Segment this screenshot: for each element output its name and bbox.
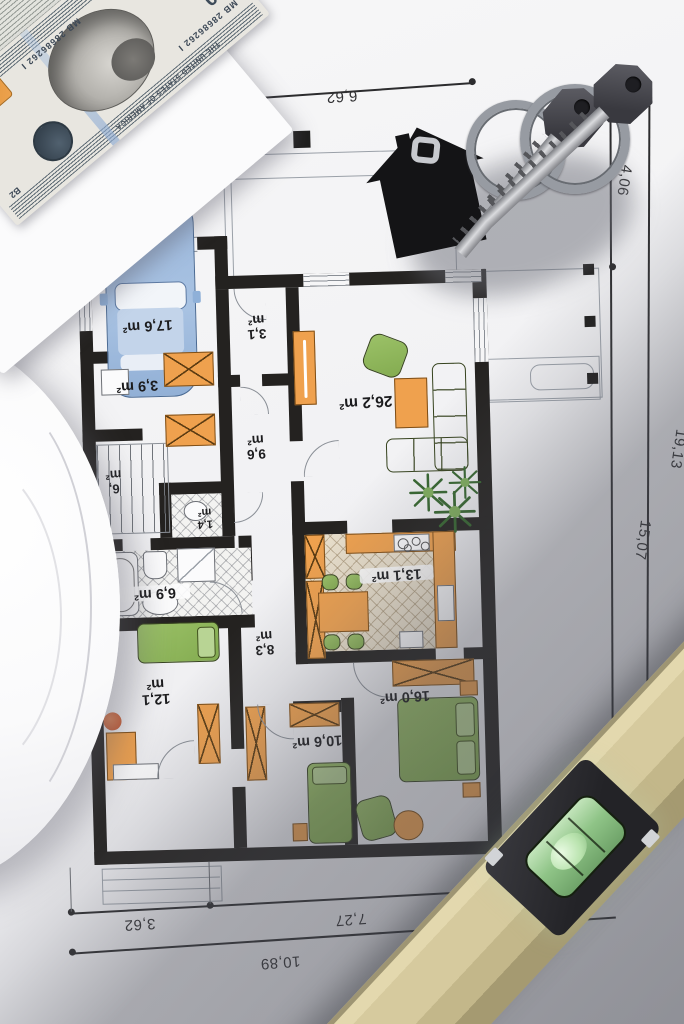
sink-symbol [437, 585, 455, 621]
window [303, 273, 349, 287]
dimension-dot [231, 95, 238, 102]
window [78, 287, 92, 331]
wall-segment [218, 375, 240, 388]
door-arc [303, 440, 340, 477]
pillow [197, 627, 216, 658]
car-mirror [100, 293, 108, 305]
sideboard-line [303, 340, 308, 398]
vial-clip [641, 829, 661, 849]
room-label-hallway: 9,6 m² [240, 431, 272, 461]
nightstand [462, 782, 480, 797]
dining-table [318, 591, 369, 632]
wardrobe [289, 702, 340, 727]
bed-symbol [137, 621, 220, 663]
porch-post [293, 131, 310, 148]
wall-segment [94, 841, 502, 865]
dimension-label-right-2: 15,07 [631, 519, 654, 561]
ball-symbol [103, 712, 121, 730]
door-arc [156, 740, 195, 779]
burner [421, 542, 430, 551]
chair [323, 634, 340, 650]
nightstand [292, 823, 307, 841]
room-label-bedroom-3: 16,0 m² [369, 686, 442, 706]
dishwasher-symbol [399, 631, 423, 649]
chair [347, 633, 364, 649]
stove-symbol [393, 534, 429, 552]
terrace-post [587, 373, 598, 384]
car-mirror [193, 291, 201, 303]
room-label-bedroom-2: 10,6 m² [282, 731, 353, 751]
wall-segment [228, 627, 244, 749]
dimension-dot [69, 949, 76, 956]
sideboard [293, 331, 317, 406]
burner [404, 544, 412, 552]
room-label-hidden: 6, m² [98, 467, 130, 496]
double-bed-symbol [397, 696, 480, 782]
wardrobe [197, 703, 221, 764]
dimension-label-bottom-3: 10,89 [260, 952, 301, 972]
section-sketch [102, 865, 223, 904]
toilet-symbol [143, 551, 168, 580]
wall-segment [232, 787, 247, 848]
room-label-wc: 1,4 m² [191, 505, 218, 530]
level-vial [520, 790, 632, 904]
door-arc [233, 492, 264, 523]
burner [412, 537, 421, 546]
pillow [455, 702, 475, 737]
bed-symbol [307, 762, 353, 844]
round-table [393, 810, 424, 841]
keys-group [348, 70, 684, 350]
key-hole [622, 73, 645, 96]
shelf-symbol [113, 763, 159, 780]
kitchen-tall-unit [304, 534, 325, 579]
room-label-entry: 3,1 m² [241, 311, 273, 341]
pillow [312, 766, 347, 785]
dimension-label-right-3: 19,13 [667, 428, 684, 470]
room-label-garage: 17,6 m² [112, 315, 183, 335]
terrace-bench [530, 363, 595, 391]
shower-symbol [177, 548, 216, 583]
dimension-label-bottom-2: 7,27 [335, 910, 367, 929]
wall-segment [82, 428, 142, 442]
photo-scene: 17,6 m² 3,1 m² 3,9 m² 9,6 m² 26,2 m² 1,4… [0, 0, 684, 1024]
chair [322, 574, 339, 590]
dimension-label-bottom-1: 3,62 [124, 915, 156, 934]
pillow [456, 740, 476, 775]
extension-line [70, 868, 72, 912]
room-label-hall: 8,3 m² [249, 627, 281, 657]
armchair [353, 793, 399, 843]
wardrobe [165, 413, 216, 446]
room-label-bedroom-1: 12,1 m² [138, 674, 174, 707]
door-arc [240, 386, 269, 415]
houseplant-symbol [447, 464, 484, 501]
nightstand [460, 680, 478, 695]
